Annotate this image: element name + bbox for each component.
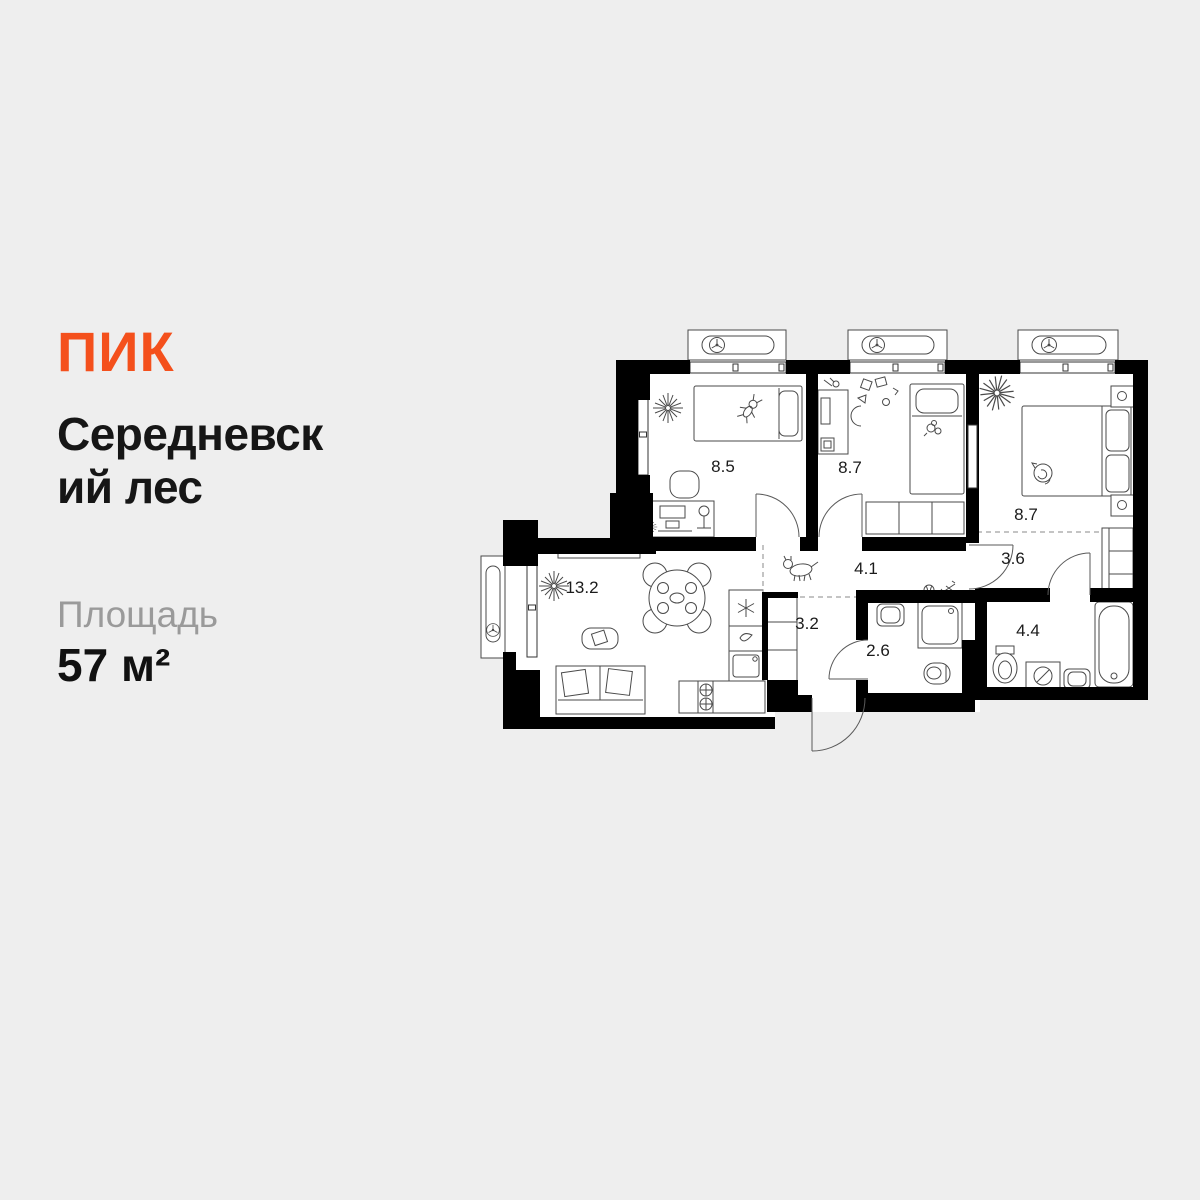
- room-area-label-bathroom: 4.4: [1016, 621, 1040, 640]
- nightstand-icon: [1111, 386, 1134, 407]
- fridge-icon: [729, 590, 763, 626]
- room-area-label-bedroom-3: 8.7: [1014, 505, 1038, 524]
- room-area-label-kitchen-niche: 3.2: [795, 614, 819, 633]
- floor-plan: 8.5 8.7 8.7 4.1 3.6 13.2 3.2 2.6 4.4: [480, 318, 1152, 760]
- pik-logo: ПИК: [57, 324, 175, 380]
- dresser-icon: [866, 502, 964, 534]
- room-area-label-bedroom-1: 8.5: [711, 457, 735, 476]
- ac-unit-icon: [487, 624, 500, 637]
- washing-machine-icon: [1026, 662, 1060, 690]
- room-area-label-bedroom-2: 8.7: [838, 458, 862, 477]
- floor-plan-svg: 8.5 8.7 8.7 4.1 3.6 13.2 3.2 2.6 4.4: [480, 318, 1152, 760]
- kitchen-sink-icon: [729, 626, 763, 651]
- washbasin-icon: [1064, 669, 1090, 689]
- wardrobe-icon: [1102, 528, 1133, 597]
- double-bed-icon: [1022, 406, 1131, 496]
- sofa-icon: [556, 666, 645, 714]
- ac-unit-icon: [1042, 338, 1057, 353]
- balcony-left: [481, 556, 505, 658]
- bathtub-icon: [1095, 602, 1133, 687]
- shower-icon: [918, 602, 962, 648]
- listing-card: ПИК Середневск ий лес Площадь 57 м²: [0, 0, 1200, 1200]
- ac-unit-icon: [710, 338, 725, 353]
- project-title-line1: Середневск: [57, 408, 323, 461]
- project-title-line2: ий лес: [57, 461, 323, 514]
- room-area-label-wc: 2.6: [866, 641, 890, 660]
- area-value: 57 м²: [57, 640, 170, 691]
- washbasin-icon: [877, 604, 904, 626]
- coffee-table-icon: [582, 628, 618, 649]
- toilet-icon: [924, 663, 950, 684]
- balcony-top-3: [1018, 330, 1118, 360]
- room-area-label-vestibule: 3.6: [1001, 549, 1025, 568]
- area-label: Площадь: [57, 595, 218, 636]
- room-area-label-living-kitchen: 13.2: [565, 578, 598, 597]
- partition: [968, 425, 977, 488]
- nightstand-icon: [1111, 495, 1134, 516]
- single-bed-icon: [910, 384, 964, 494]
- room-area-label-hallway: 4.1: [854, 559, 878, 578]
- balcony-top-1: [688, 330, 786, 360]
- bed-icon: [694, 386, 802, 441]
- toilet-icon: [993, 646, 1017, 683]
- stove-icon: [679, 681, 765, 713]
- project-title: Середневск ий лес: [57, 408, 323, 515]
- ac-unit-icon: [870, 338, 885, 353]
- kitchen-counter-icon: [729, 651, 763, 681]
- balcony-top-2: [848, 330, 947, 360]
